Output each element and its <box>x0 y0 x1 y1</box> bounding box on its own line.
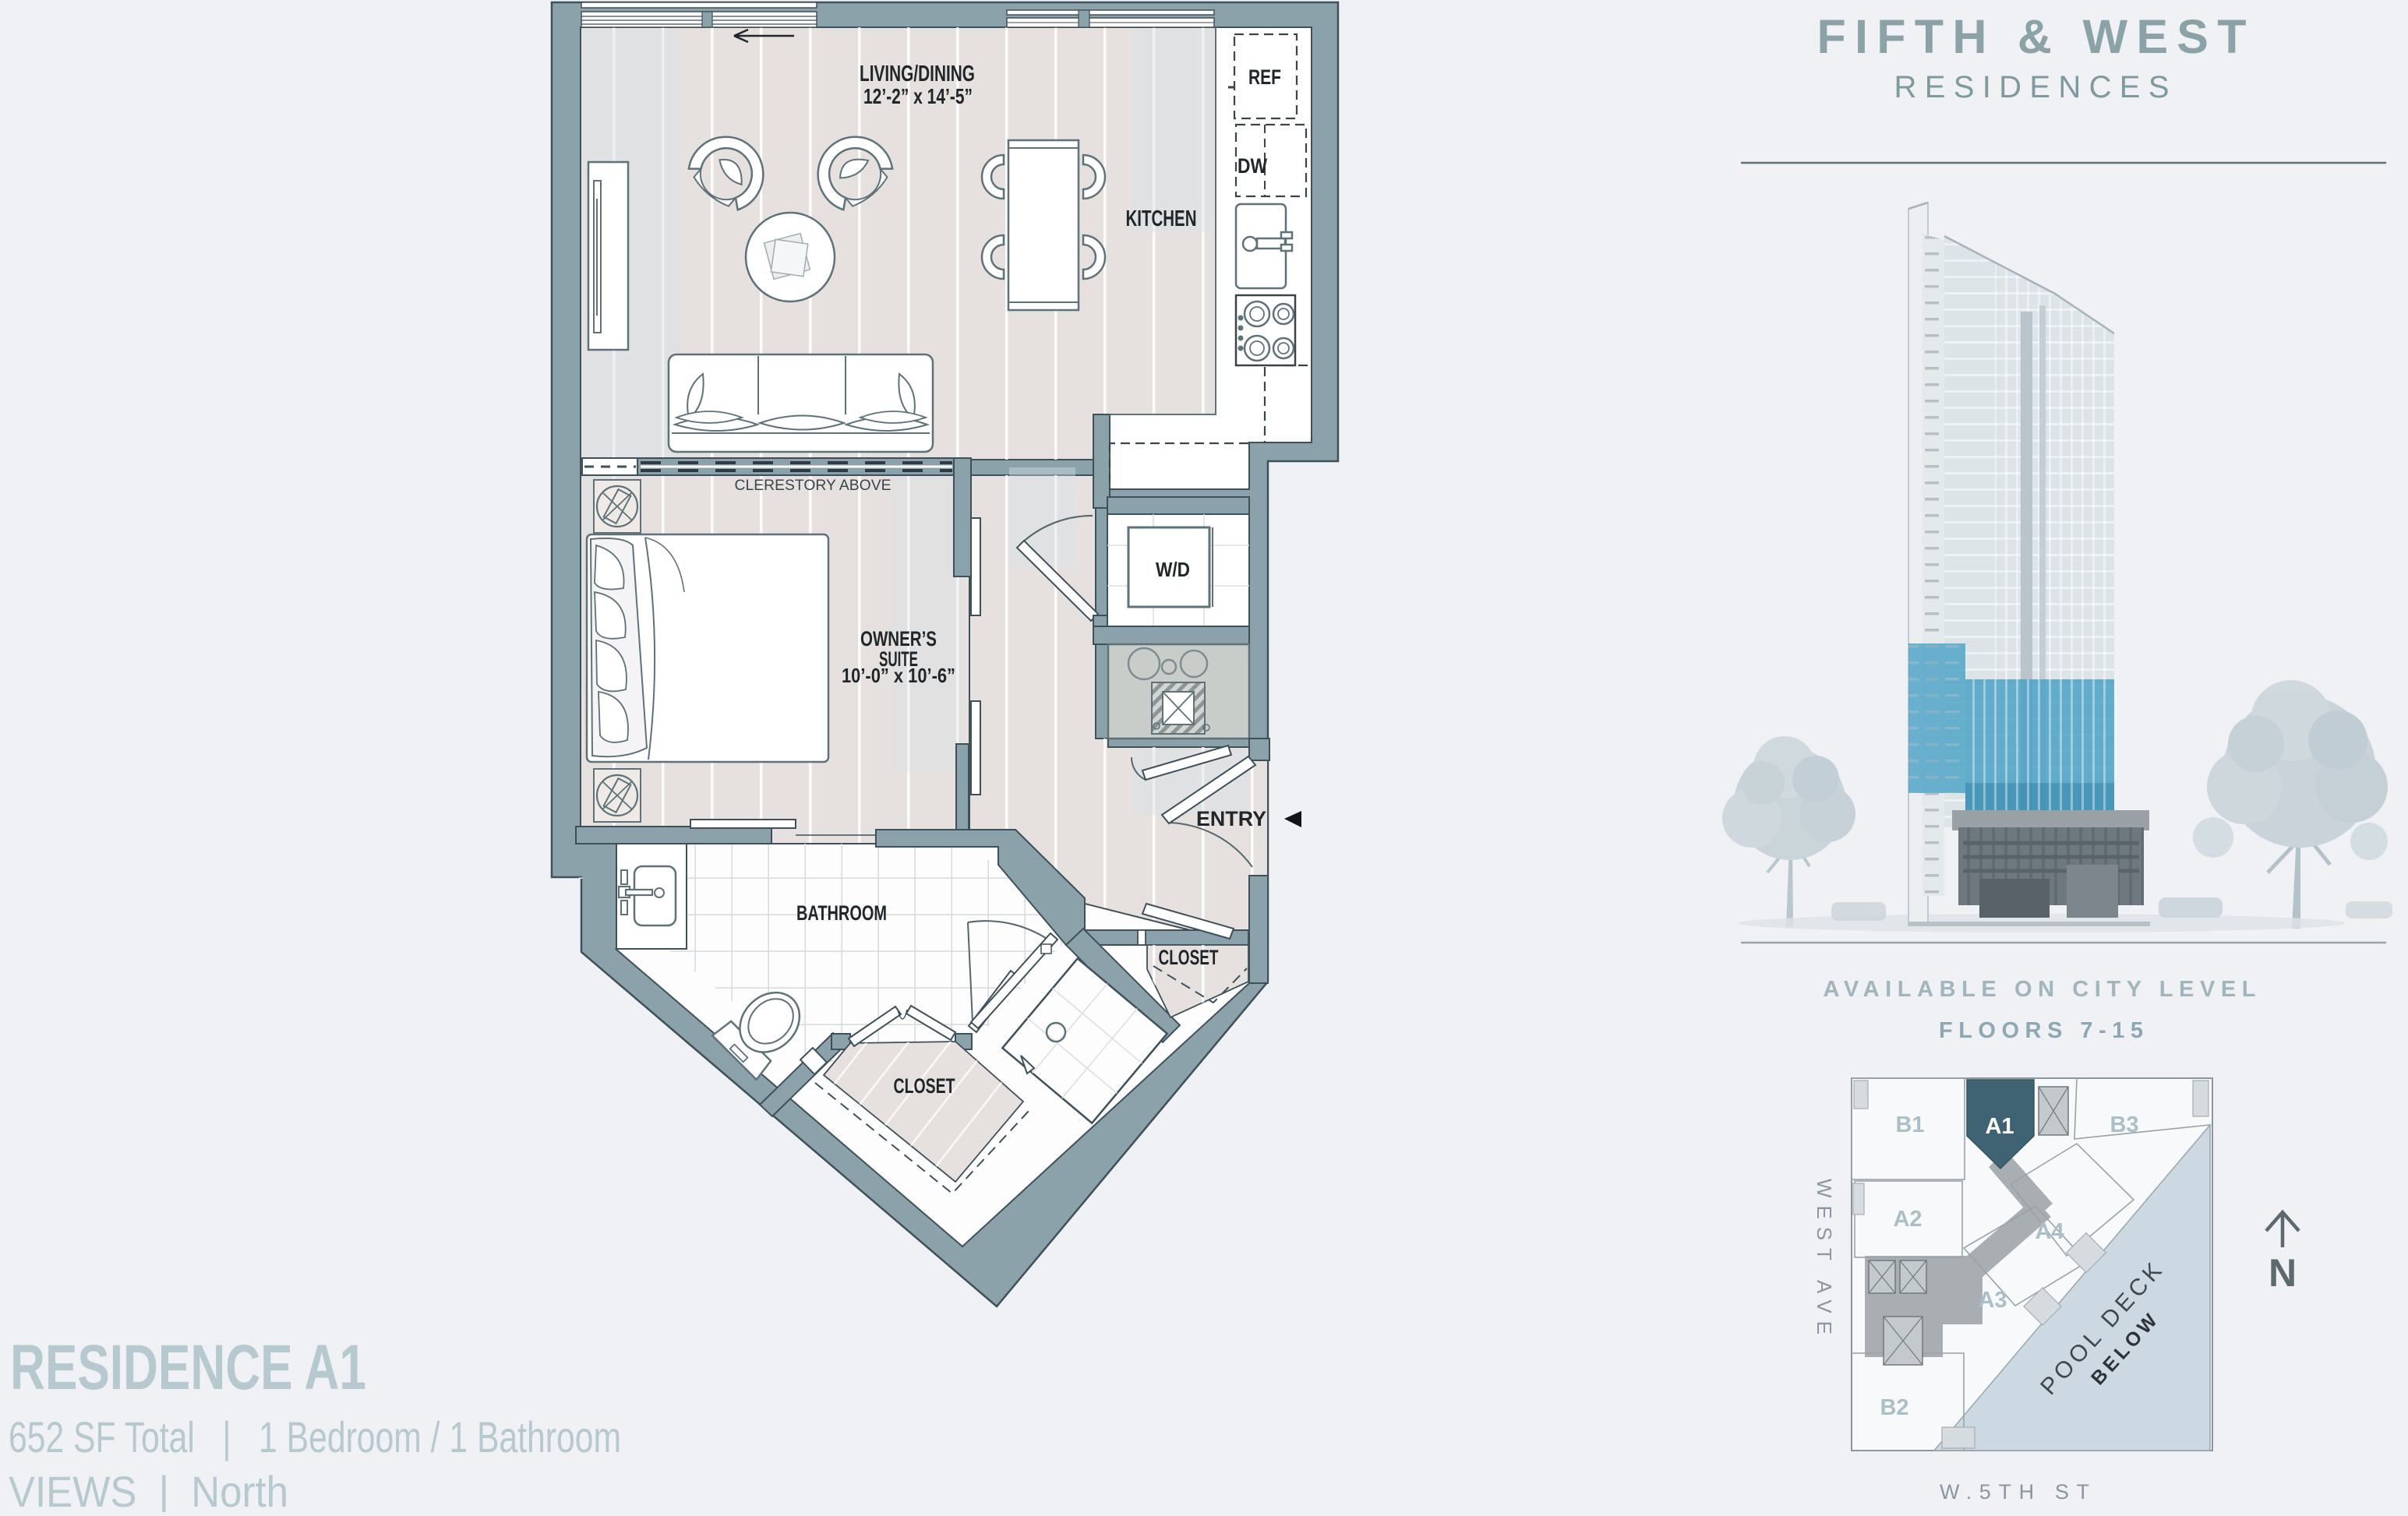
svg-text:CLERESTORY ABOVE: CLERESTORY ABOVE <box>735 478 892 494</box>
svg-text:BATHROOM: BATHROOM <box>796 901 887 925</box>
svg-text:VIEWS | North: VIEWS | North <box>9 1467 288 1512</box>
svg-text:FIFTH & WEST: FIFTH & WEST <box>1817 10 2247 63</box>
svg-text:W/D: W/D <box>1156 558 1190 581</box>
svg-text:DW: DW <box>1238 154 1267 178</box>
svg-text:A1: A1 <box>1985 1114 2014 1139</box>
svg-text:A4: A4 <box>2035 1219 2064 1244</box>
svg-text:CLOSET: CLOSET <box>1159 946 1219 969</box>
svg-text:B3: B3 <box>2110 1112 2138 1137</box>
svg-text:A3: A3 <box>1978 1288 2007 1313</box>
svg-text:KITCHEN: KITCHEN <box>1126 206 1197 231</box>
svg-text:CLOSET: CLOSET <box>894 1074 955 1098</box>
svg-text:N: N <box>2269 1251 2297 1295</box>
svg-text:RESIDENCES: RESIDENCES <box>1894 70 2170 104</box>
svg-text:A2: A2 <box>1893 1207 1922 1232</box>
svg-text:AVAILABLE ON CITY LEVEL: AVAILABLE ON CITY LEVEL <box>1824 977 2256 1002</box>
svg-text:LIVING/DINING: LIVING/DINING <box>860 62 975 86</box>
svg-text:FLOORS 7-15: FLOORS 7-15 <box>1939 1018 2143 1043</box>
svg-text:RESIDENCE A1: RESIDENCE A1 <box>10 1332 366 1403</box>
svg-text:ENTRY: ENTRY <box>1196 807 1266 830</box>
svg-text:10’-0” x 10’-6”: 10’-0” x 10’-6” <box>842 664 955 687</box>
svg-text:REF: REF <box>1248 65 1281 89</box>
svg-text:652 SF Total | 1 Bedroom /: 652 SF Total | 1 Bedroom / 1 Bathroom <box>9 1412 621 1461</box>
svg-text:B1: B1 <box>1895 1112 1924 1137</box>
svg-text:B2: B2 <box>1880 1395 1908 1420</box>
svg-text:12’-2” x 14’-5”: 12’-2” x 14’-5” <box>863 84 973 108</box>
